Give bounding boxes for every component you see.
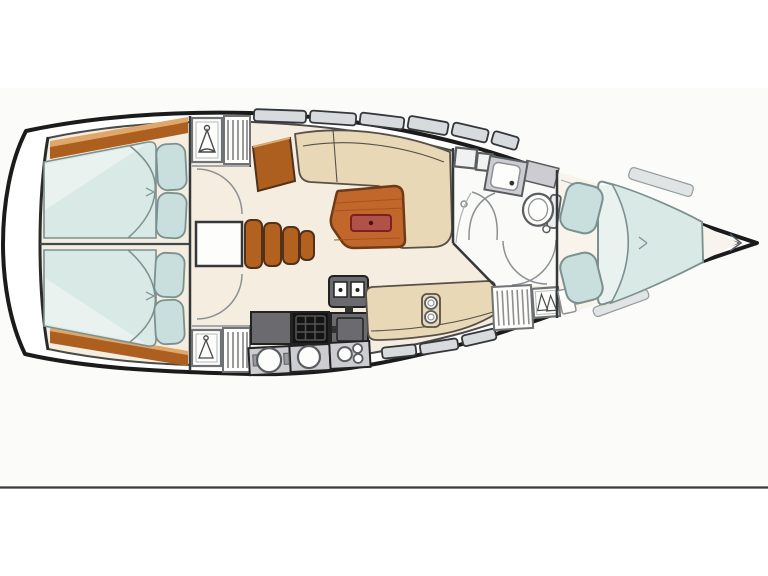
hull-window (310, 110, 357, 125)
round-sink (297, 345, 320, 368)
cabinet (454, 147, 477, 168)
fridge-handle (332, 326, 337, 333)
cup-holder (425, 311, 437, 323)
companionway (196, 220, 314, 268)
faucet-circle (353, 354, 362, 363)
sink-basin (490, 162, 521, 191)
pillow (156, 192, 187, 238)
toilet-hinge (542, 225, 550, 233)
switch-dot (339, 288, 343, 292)
pillow (154, 299, 185, 344)
companionway-box (196, 222, 242, 266)
head-sink (484, 156, 527, 196)
oven-handle (345, 306, 353, 313)
nav-station (253, 138, 295, 191)
boat-layout-image (0, 0, 768, 576)
table-inset-dot (369, 221, 373, 225)
sink-hinge (284, 353, 290, 364)
hull-window (254, 109, 306, 123)
switch-dot (356, 288, 360, 292)
boat-floor-plan-svg (0, 0, 768, 576)
round-sink (256, 348, 281, 373)
small-basin (337, 347, 352, 362)
pillow (156, 143, 187, 190)
hull-window (382, 344, 417, 358)
faucet-circle (353, 344, 362, 353)
counter-block (251, 312, 291, 344)
cup-holder (425, 297, 437, 309)
slatted-locker (223, 328, 250, 372)
pillow (154, 252, 185, 297)
